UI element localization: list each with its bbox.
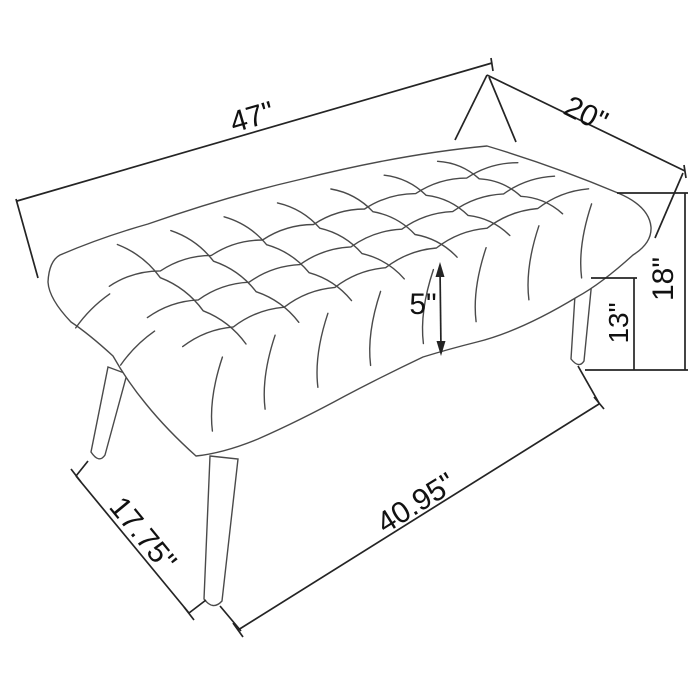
dim-5-line [440,268,441,350]
label-overall-height: 18" [647,257,680,301]
dim-20-witness-left [455,75,487,140]
dim-4095-extension-right [578,366,599,403]
label-cushion-thickness: 5" [409,288,436,321]
dim-4095-extension-left [220,606,241,631]
label-leg-footprint-depth: 17.75" [103,491,183,578]
dim-4095-tick-left [233,623,243,637]
bench-cushion-outline [48,146,651,456]
bench-leg-back-left [91,367,127,459]
dim-1775-tick-bottom [184,607,194,620]
bench-dimension-diagram: 47" 20" 5" 18" 13" 17.75" 40.95" [0,0,700,700]
diagram-canvas: 47" 20" 5" 18" 13" 17.75" 40.95" [0,0,700,700]
dim-20-extension-right [655,173,683,238]
dim-1775-extension-top [76,461,88,476]
dim-20-end-tick [684,165,686,178]
dim-1775-extension-bottom [189,600,206,613]
label-leg-footprint-length: 40.95" [371,467,461,540]
bench-leg-front-left [204,456,238,606]
label-seat-length-top: 47" [226,95,277,139]
dim-47-end-tick [491,58,493,71]
label-floor-to-seat-bottom: 13" [603,302,634,343]
dim-47-extension-left [16,199,38,278]
dim-4095-tick-right [594,397,604,409]
